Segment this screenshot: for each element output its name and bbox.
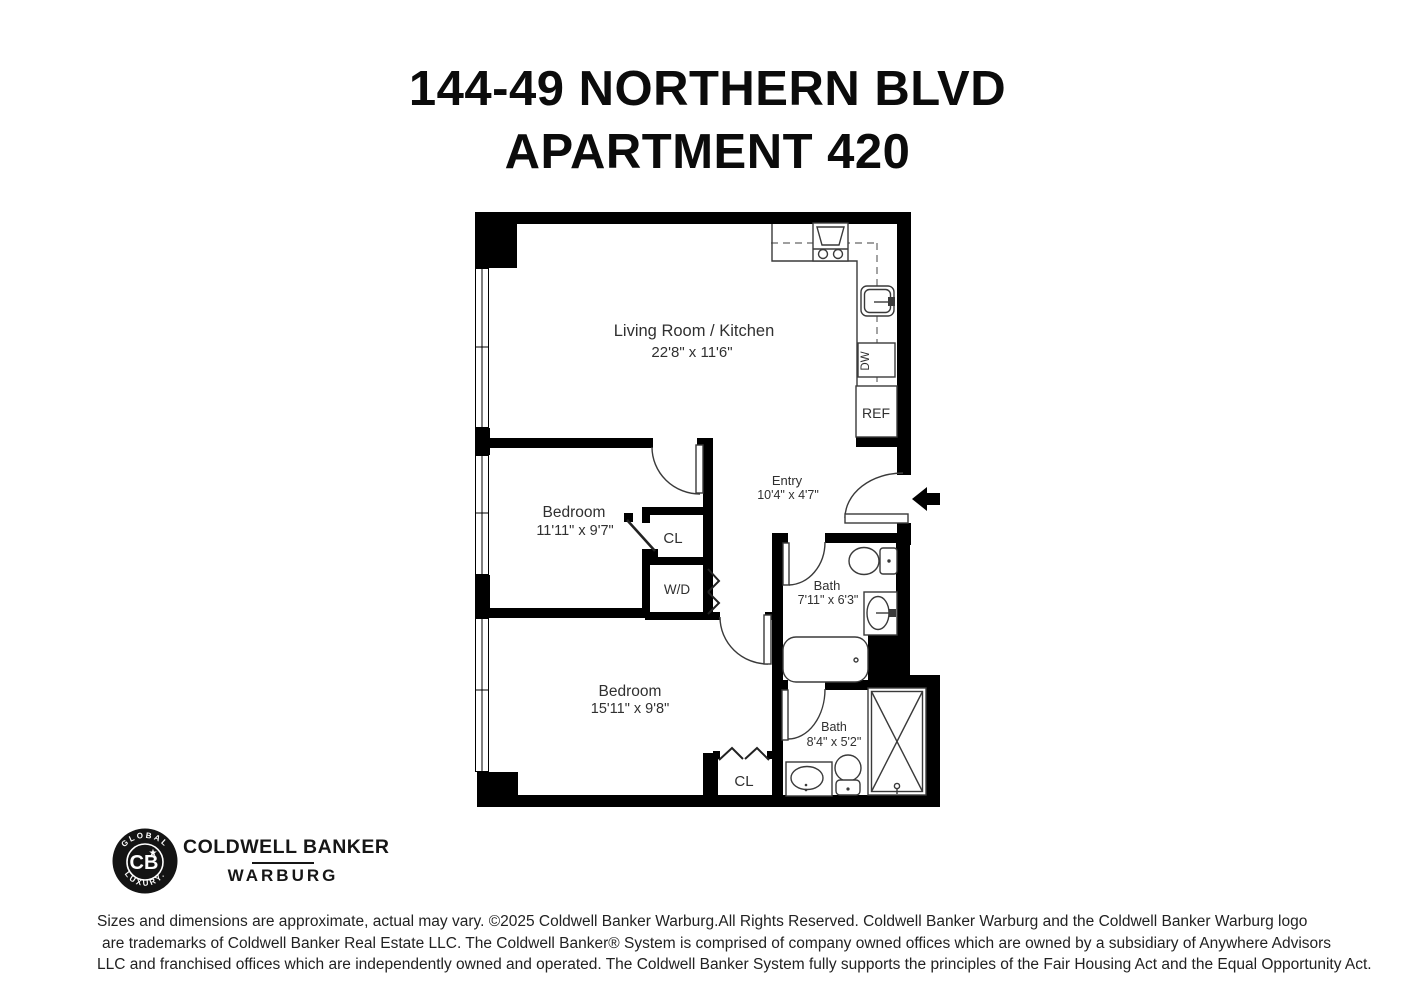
closet1-label: CL [663, 530, 682, 547]
window-bedroom2 [475, 618, 489, 772]
bedroom1-door [652, 445, 703, 494]
bathtub-icon [783, 637, 868, 682]
floorplan-drawing: DW REF [470, 205, 950, 815]
disclaimer-line1: Sizes and dimensions are approximate, ac… [97, 911, 1387, 933]
brand-subname: WARBURG [183, 866, 383, 886]
disclaimer-line2: are trademarks of Coldwell Banker Real E… [97, 933, 1387, 955]
room-dims-bedroom1: 11'11" x 9'7" [536, 523, 613, 539]
entry-door [845, 473, 908, 523]
washer-dryer-label: W/D [664, 582, 690, 597]
room-dims-entry: 10'4" x 4'7" [757, 488, 819, 502]
kitchen-sink-icon [861, 286, 895, 316]
room-dims-living: 22'8" x 11'6" [651, 344, 732, 361]
dishwasher-label: DW [860, 351, 872, 370]
closet2-bifold-door [719, 748, 769, 760]
brand-divider [252, 862, 314, 864]
title-apartment: APARTMENT 420 [0, 121, 1415, 184]
bedroom2-door [720, 615, 771, 664]
room-label-bedroom1: Bedroom [543, 504, 606, 521]
room-dims-bath1: 7'11" x 6'3" [798, 593, 859, 607]
toilet-icon [849, 548, 897, 575]
entry-arrow-icon [912, 487, 940, 511]
stove-icon [813, 223, 848, 261]
toilet2-icon [835, 755, 861, 795]
brand-wordmark: COLDWELL BANKER WARBURG [183, 836, 383, 886]
bath2-door [782, 689, 825, 740]
closet1-door [627, 520, 655, 551]
room-label-living: Living Room / Kitchen [614, 322, 775, 340]
bath2-sink-icon [786, 762, 832, 796]
window-bedroom1 [475, 455, 489, 575]
floorplan-page: 144-49 NORTHERN BLVD APARTMENT 420 [0, 0, 1415, 1000]
room-dims-bedroom2: 15'11" x 9'8" [591, 701, 669, 717]
disclaimer: Sizes and dimensions are approximate, ac… [97, 911, 1387, 976]
bath1-sink-icon [864, 592, 897, 635]
dishwasher-icon: DW [858, 343, 895, 377]
closet2-label: CL [734, 773, 753, 790]
window-living [475, 268, 489, 428]
room-label-bath1: Bath [814, 578, 841, 593]
badge-star-icon: ★ [149, 848, 158, 859]
global-luxury-badge: GLOBAL LUXURY. CB ★ [110, 826, 180, 896]
disclaimer-line3: LLC and franchised offices which are ind… [97, 954, 1387, 976]
refrigerator-label: REF [862, 405, 890, 421]
room-dims-bath2: 8'4" x 5'2" [807, 735, 862, 749]
refrigerator-icon: REF [856, 386, 897, 437]
room-label-bedroom2: Bedroom [599, 683, 662, 700]
room-label-entry: Entry [772, 473, 803, 488]
room-label-bath2: Bath [821, 720, 847, 734]
windows [475, 268, 489, 772]
shower-icon [868, 688, 926, 795]
brand-name: COLDWELL BANKER [183, 836, 383, 859]
title-address: 144-49 NORTHERN BLVD [0, 58, 1415, 121]
page-title: 144-49 NORTHERN BLVD APARTMENT 420 [0, 58, 1415, 184]
